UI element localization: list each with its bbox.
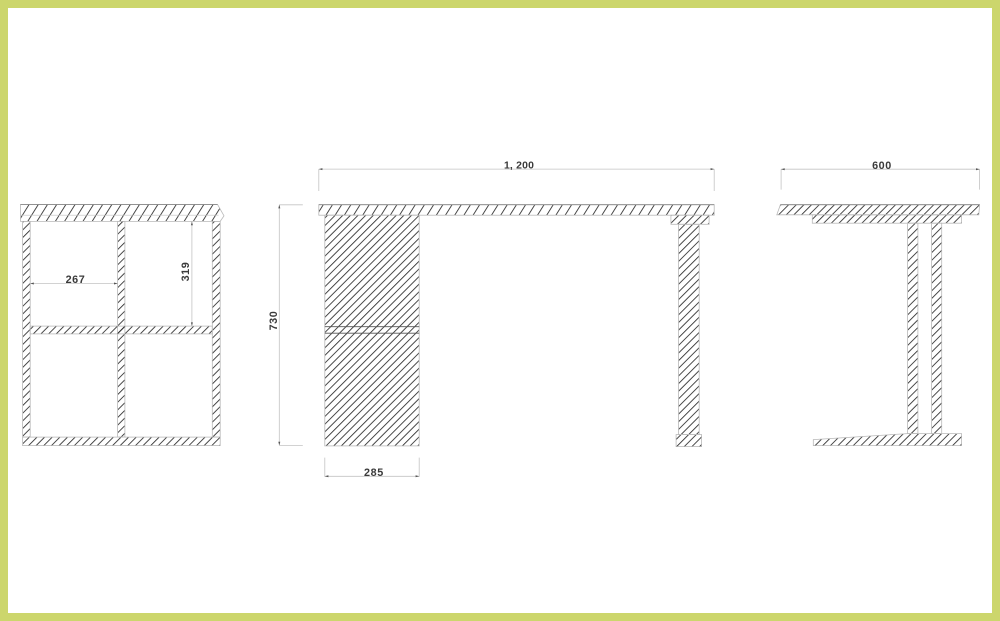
svg-text:1, 200: 1, 200 [504, 160, 534, 171]
svg-text:267: 267 [66, 274, 86, 286]
svg-text:319: 319 [180, 262, 192, 282]
svg-text:600: 600 [872, 160, 892, 172]
svg-text:730: 730 [268, 311, 280, 331]
svg-text:285: 285 [364, 467, 384, 479]
